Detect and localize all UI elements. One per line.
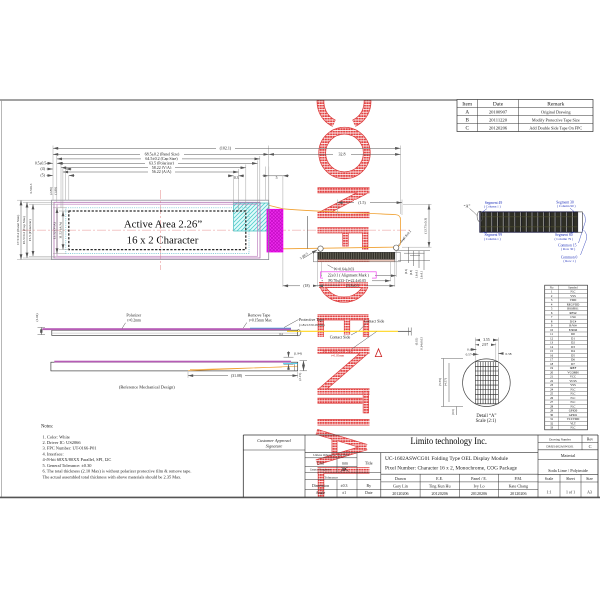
svg-text:P.M.: P.M. <box>515 476 523 481</box>
svg-text:Original Drawing: Original Drawing <box>541 109 572 114</box>
svg-text:Add Double Side Tape On FPC: Add Double Side Tape On FPC <box>529 125 582 130</box>
svg-text:Title: Title <box>365 461 373 466</box>
svg-text:15.5 (Polarizer): 15.5 (Polarizer) <box>28 218 32 241</box>
svg-text:Drawing Number: Drawing Number <box>549 437 571 441</box>
svg-text:A: A <box>465 110 469 116</box>
svg-text:t=0.05mm: t=0.05mm <box>331 353 345 357</box>
svg-text:UC-1602ASWCG01 Folding Type OE: UC-1602ASWCG01 Folding Type OEL Display … <box>385 456 509 462</box>
svg-text:Gary Lin: Gary Lin <box>393 483 408 488</box>
svg-text:Detail “A”: Detail “A” <box>476 413 496 419</box>
svg-text:(Reference Mechanical Design): (Reference Mechanical Design) <box>119 385 175 390</box>
svg-text:C: C <box>589 444 592 449</box>
svg-text:Active Area 2.26”: Active Area 2.26” <box>124 219 202 231</box>
svg-text:Pixel Number: Character 16 x 2: Pixel Number: Character 16 x 2, Monochro… <box>385 466 518 472</box>
svg-text:Sheet: Sheet <box>566 477 576 481</box>
svg-text:W=0.64±0.03: W=0.64±0.03 <box>334 267 355 271</box>
svg-text:1. Color: White: 1. Color: White <box>43 434 70 439</box>
svg-text:(4.57): (4.57) <box>443 378 447 386</box>
svg-text:0.6: 0.6 <box>467 348 472 352</box>
svg-text:20120206: 20120206 <box>471 491 487 496</box>
svg-text:mm: mm <box>342 461 348 465</box>
svg-text:Item: Item <box>462 102 473 108</box>
svg-text:0.58: 0.58 <box>506 352 512 356</box>
svg-text:Unit: Unit <box>317 461 325 465</box>
svg-text:Modify Protective Tape Size: Modify Protective Tape Size <box>532 117 580 122</box>
svg-text:56.22 (A/A): 56.22 (A/A) <box>152 169 172 174</box>
svg-text:5. General Tolerance: ±0.30: 5. General Tolerance: ±0.30 <box>43 463 93 468</box>
svg-text:13.52 (V/A): 13.52 (V/A) <box>52 221 56 239</box>
svg-text:Tolerance: Tolerance <box>324 476 338 480</box>
svg-text:( Column 79 ): ( Column 79 ) <box>555 237 574 241</box>
svg-text:23.8±0.3: 23.8±0.3 <box>346 284 360 288</box>
svg-text:0.5±0.5: 0.5±0.5 <box>35 161 46 165</box>
svg-text:P0.70x(33-1)=22.4±0.05: P0.70x(33-1)=22.4±0.05 <box>328 279 366 283</box>
svg-text:(18): (18) <box>303 284 310 288</box>
svg-text:3.55: 3.55 <box>483 338 489 342</box>
svg-text:(0.5): (0.5) <box>451 409 455 415</box>
svg-text:(2.04): (2.04) <box>35 314 39 322</box>
svg-text:( Row 30 ): ( Row 30 ) <box>561 247 575 251</box>
svg-text:Rev: Rev <box>587 438 593 442</box>
svg-text:Soda Lime / Polyimide: Soda Lime / Polyimide <box>548 468 588 473</box>
svg-text:(2.15): (2.15) <box>298 373 302 381</box>
svg-text:0.5±0.3: 0.5±0.3 <box>29 183 33 193</box>
svg-text:Polarizer: Polarizer <box>126 313 141 318</box>
svg-text:(0.3): (0.3) <box>405 269 408 274</box>
svg-text:22±0.1 ( Alignment Mark ): 22±0.1 ( Alignment Mark ) <box>328 274 370 278</box>
svg-text:( Column 1 ): ( Column 1 ) <box>484 205 501 209</box>
svg-text:Unless Otherwise Specified: Unless Otherwise Specified <box>313 453 349 457</box>
svg-text:(2.89): (2.89) <box>49 187 53 195</box>
svg-text:32.8: 32.8 <box>339 152 346 157</box>
svg-text:Dimension: Dimension <box>312 484 329 488</box>
svg-text:5: 5 <box>276 176 278 180</box>
svg-text:Remark: Remark <box>547 102 564 108</box>
svg-text:Signature: Signature <box>266 443 283 448</box>
svg-text:33: 33 <box>550 426 554 430</box>
svg-text:Scale: Scale <box>545 477 554 481</box>
svg-text:(5): (5) <box>41 173 46 177</box>
svg-text:Customer Approval: Customer Approval <box>257 438 291 443</box>
svg-text:( Row 1 ): ( Row 1 ) <box>563 259 576 263</box>
svg-text:2.97: 2.97 <box>482 343 488 347</box>
svg-text:0.14±0.03: 0.14±0.03 <box>420 337 424 350</box>
svg-text:±0.3: ±0.3 <box>341 484 348 488</box>
svg-text:The actual assembled total thi: The actual assembled total thickness wit… <box>43 474 182 479</box>
svg-text:Ivy Lo: Ivy Lo <box>473 483 484 488</box>
svg-text:C: C <box>465 126 469 132</box>
svg-text:Date: Date <box>493 102 504 108</box>
svg-text:Limito technology Inc.: Limito technology Inc. <box>411 436 488 447</box>
svg-text:20120206: 20120206 <box>489 126 508 131</box>
svg-text:(0.9): (0.9) <box>410 270 413 275</box>
svg-text:Date: Date <box>365 491 373 495</box>
svg-text:t=0.15mm Max: t=0.15mm Max <box>249 318 272 322</box>
svg-text:1:1: 1:1 <box>547 490 552 494</box>
svg-text:Drawn: Drawn <box>395 476 406 481</box>
svg-text:( Column 90 ): ( Column 90 ) <box>557 204 576 208</box>
svg-text:(1.5): (1.5) <box>358 201 366 205</box>
svg-text:16.5±0.2 (Cap Size): 16.5±0.2 (Cap Size) <box>22 215 26 244</box>
svg-text:E.E.: E.E. <box>436 476 443 481</box>
svg-text:DMU1602ASWG01: DMU1602ASWG01 <box>546 445 574 449</box>
svg-text:Material: Material <box>561 453 576 458</box>
svg-text:(13.75±0.3): (13.75±0.3) <box>423 218 427 234</box>
svg-text:3.6±0.1: 3.6±0.1 <box>421 270 424 279</box>
svg-text:Panel / E.: Panel / E. <box>471 476 487 481</box>
svg-text:(4): (4) <box>41 167 46 171</box>
svg-text:Protective Tape: Protective Tape <box>299 317 324 322</box>
svg-text:6. The total thickness (2.10 M: 6. The total thickness (2.10 Max) is wit… <box>43 469 192 474</box>
svg-text:(5.55): (5.55) <box>438 378 442 386</box>
svg-text:N.C: N.C <box>571 426 576 430</box>
svg-text:Angle: Angle <box>316 491 326 495</box>
svg-text:Kate Chang: Kate Chang <box>509 483 528 488</box>
svg-text:(1.8x3.5±0.05mm): (1.8x3.5±0.05mm) <box>299 323 325 327</box>
svg-text:(1.99): (1.99) <box>54 187 58 195</box>
svg-text:16 x 2 Character: 16 x 2 Character <box>127 235 199 247</box>
svg-text:Size: Size <box>586 477 593 481</box>
svg-text:1 of 1: 1 of 1 <box>566 490 575 494</box>
svg-text:20111220: 20111220 <box>489 118 508 123</box>
svg-text:By: By <box>367 484 372 488</box>
svg-text:0.3: 0.3 <box>234 176 239 180</box>
svg-text:General Roughness: General Roughness <box>310 468 331 471</box>
svg-text:±1: ±1 <box>342 491 346 495</box>
svg-text:t=0.2mm: t=0.2mm <box>127 319 141 323</box>
svg-text:1.6±0.1: 1.6±0.1 <box>416 269 419 278</box>
svg-text:11.52 (A/A): 11.52 (A/A) <box>58 221 62 239</box>
svg-text:Contact Side: Contact Side <box>364 319 385 324</box>
svg-text:Scale (2:1): Scale (2:1) <box>476 419 497 424</box>
svg-text:( Column 1 ): ( Column 1 ) <box>484 237 501 241</box>
svg-text:(1.94): (1.94) <box>294 352 302 356</box>
svg-text:A3: A3 <box>587 490 592 494</box>
svg-text:4. Interface:: 4. Interface: <box>43 451 64 456</box>
svg-text:0.57: 0.57 <box>466 352 472 356</box>
svg-text:(31.08): (31.08) <box>231 374 243 378</box>
svg-text:(0.15): (0.15) <box>415 338 419 345</box>
svg-text:20120206: 20120206 <box>392 491 408 496</box>
svg-text:17.5±0.2 (Panel Size): 17.5±0.2 (Panel Size) <box>16 214 20 245</box>
svg-text:Contact Side: Contact Side <box>330 335 351 340</box>
svg-text:20100907: 20100907 <box>489 110 508 115</box>
svg-text:2. Driver IC: US2066: 2. Driver IC: US2066 <box>43 440 82 445</box>
svg-text:20120206: 20120206 <box>432 491 448 496</box>
svg-text:“A”: “A” <box>464 203 471 208</box>
svg-text:3. FPC Number: UT-0166-P01: 3. FPC Number: UT-0166-P01 <box>43 446 97 451</box>
svg-text:Ting Kun Hu: Ting Kun Hu <box>429 483 451 488</box>
svg-text:Remove Tape: Remove Tape <box>248 312 271 317</box>
svg-text:Notes:: Notes: <box>41 425 53 430</box>
svg-text:20120206: 20120206 <box>510 491 526 496</box>
svg-text:(102.1): (102.1) <box>220 146 232 151</box>
svg-text:B: B <box>465 118 469 124</box>
